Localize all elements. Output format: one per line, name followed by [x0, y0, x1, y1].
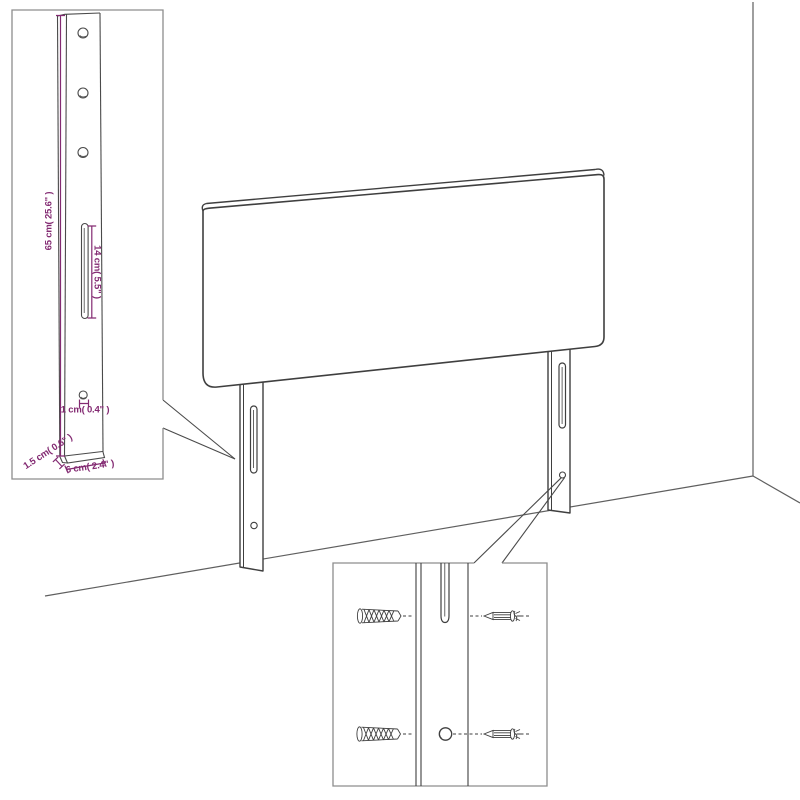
bracket-hole: [78, 148, 88, 158]
bracket-bottom-edge: [65, 452, 103, 457]
bracket-bottom-hole-shade: [81, 397, 86, 398]
floor-line-left: [45, 476, 753, 596]
callout-line: [163, 428, 235, 459]
bracket-slot: [82, 224, 89, 319]
bracket-hole: [78, 88, 88, 98]
callout-line: [163, 400, 235, 459]
callout-line: [502, 478, 565, 563]
bracket-side-edge: [58, 16, 60, 457]
bracket-hole-shade: [80, 96, 86, 97]
bracket-right-edge: [100, 13, 103, 452]
floor-line-right: [753, 476, 800, 503]
bracket-hole-shade: [80, 155, 86, 156]
mounting-inset-box: [333, 563, 547, 786]
diagram-canvas: [0, 0, 800, 800]
screw-icon: [484, 729, 521, 739]
bracket-hole-shade: [80, 36, 86, 37]
leg-detail-bracket: [58, 13, 105, 463]
bracket-front-left-edge: [65, 14, 67, 456]
wall-plug-icon: [357, 609, 401, 623]
callout-wedge-left: [163, 400, 235, 459]
alignment-dashes: [403, 616, 531, 734]
bracket-hole: [78, 28, 88, 38]
hole-diameter-dimension-label: 1 cm( 0.4" ): [61, 405, 110, 416]
wall-plug-icon: [357, 727, 401, 741]
headboard-front-face: [203, 175, 604, 388]
height-dimension-label: 65 cm( 25.6" ): [44, 192, 55, 251]
headboard: [202, 169, 604, 387]
slot-height-dimension-label: 14 cm( 5.5" ): [92, 245, 103, 299]
mounting-inset-content: [357, 563, 531, 786]
assembly-diagram: 65 cm( 25.6" ) 14 cm( 5.5" ) 1 cm( 0.4" …: [0, 0, 800, 800]
screw-icon: [484, 611, 521, 621]
left-leg: [240, 376, 263, 571]
callout-line: [474, 478, 561, 563]
bracket-bottom-hole: [79, 391, 87, 399]
